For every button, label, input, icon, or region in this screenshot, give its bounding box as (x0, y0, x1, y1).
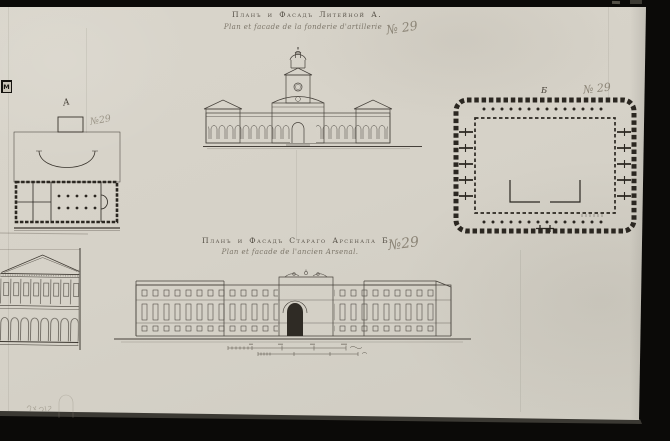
scale-bar (224, 343, 370, 359)
scale-unit-label (350, 347, 362, 349)
spire-finial (297, 47, 299, 49)
plan-apse (101, 195, 108, 209)
portal-arch-door (287, 303, 303, 336)
edge-label-letter: М (3, 82, 11, 92)
cupola (290, 47, 306, 68)
window-grid-right (334, 287, 434, 334)
plan-inner-walls (475, 118, 615, 213)
courtyard-curve (39, 151, 95, 168)
attic-trophies (285, 270, 327, 278)
arsenal-facade-drawing (111, 269, 477, 351)
dentils (0, 275, 79, 276)
upper-story-windows (0, 278, 79, 304)
foundry-plan-drawing (9, 102, 134, 236)
hatch-marks (582, 214, 602, 217)
perspective-side-wall (436, 281, 451, 336)
pencil-corner-note (25, 392, 80, 420)
arsenal-plan-drawing (452, 82, 638, 234)
foundry-facade-drawing (202, 47, 424, 153)
plan-cross-walls-left (459, 128, 473, 200)
plan-cross-walls-right (617, 128, 631, 200)
plan-outer-walls (456, 100, 634, 231)
title-foundry-french: Plan et facade de la fonderie d'artiller… (208, 23, 398, 31)
title-foundry-russian: Планъ и Фасадъ Литейной А. (200, 10, 414, 19)
doodle-arch (59, 395, 73, 418)
pediment (1, 254, 79, 273)
title-arsenal-french: Plan et facade de l'ancien Arsenal. (220, 248, 360, 256)
archive-edge-label: М (1, 80, 12, 93)
plan-columns (58, 195, 97, 210)
plan-courtyard (14, 132, 120, 182)
crease-line (520, 250, 521, 412)
scanned-archive-sheet: М Планъ и Фасадъ Литейной А. Plan et fac… (0, 0, 670, 441)
plan-column-rows (483, 108, 603, 224)
window-grid-left (139, 287, 278, 334)
plan-annex (58, 117, 83, 132)
ground-floor-arcade (0, 310, 79, 341)
scale-unit-label-2 (362, 353, 367, 354)
fragment-baseline (0, 341, 78, 342)
band-mark (630, 0, 642, 4)
crease-line (296, 150, 297, 240)
title-arsenal-russian: Планъ и Фасадъ Стараго Арсенала Б. (202, 236, 386, 245)
band-mark (612, 1, 620, 4)
central-portal (279, 270, 333, 337)
underlying-facade-fragment (0, 248, 81, 349)
plan-partitions (16, 182, 108, 222)
courtyard-structures (510, 180, 580, 202)
